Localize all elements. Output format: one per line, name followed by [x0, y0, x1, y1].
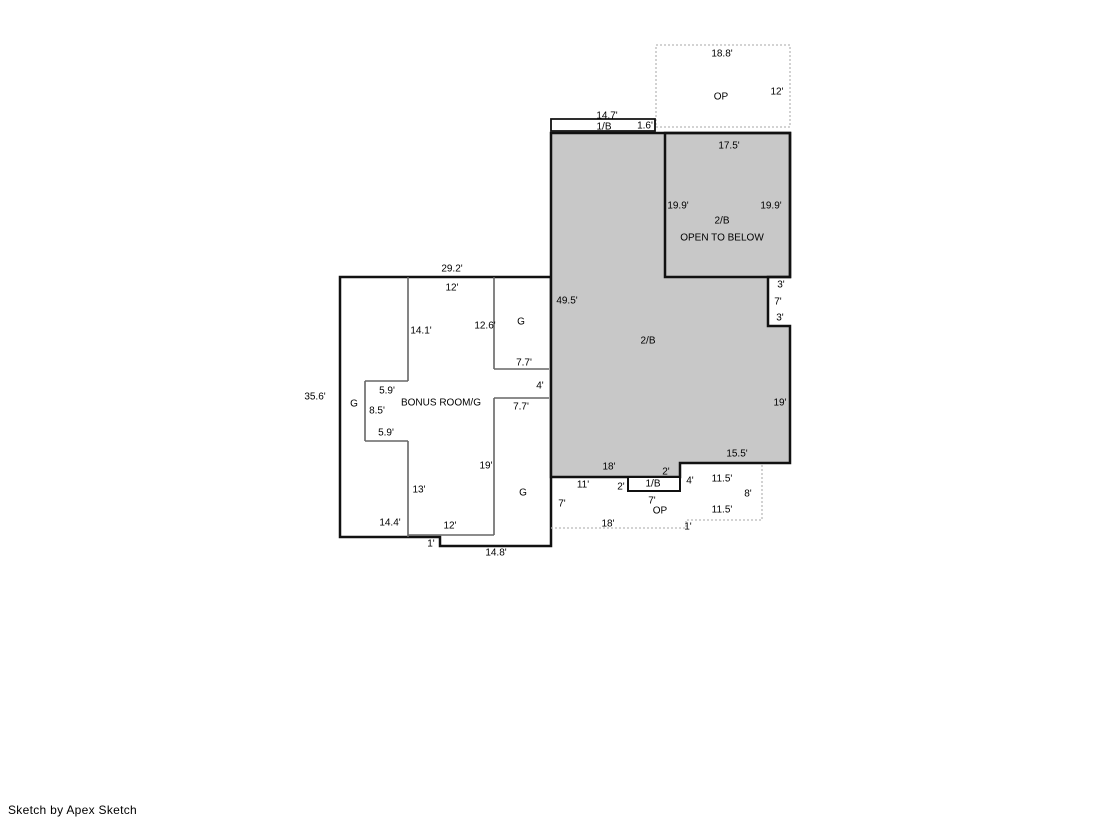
dim-label: 2' — [617, 482, 625, 493]
dim-label: 1' — [684, 522, 692, 533]
dim-label: 13' — [412, 485, 425, 496]
floorplan-canvas: 18.8'OP12'14.7'1/B1.6'17.5'19.9'19.9'2/B… — [0, 0, 1119, 821]
dim-label: 11' — [577, 480, 589, 491]
dim-label: 19' — [479, 461, 492, 472]
dim-label: 1' — [427, 539, 435, 550]
area-2b-main — [551, 133, 790, 477]
room-label-op-lower: OP — [653, 506, 668, 517]
room-label-1b-bottom: 1/B — [645, 479, 660, 490]
dim-label: 1.6' — [637, 121, 653, 132]
dim-label: 8.5' — [369, 406, 385, 417]
dim-label: 5.9' — [378, 428, 394, 439]
dim-label: 12' — [770, 87, 783, 98]
dim-label: 7.7' — [516, 358, 532, 369]
dim-label: 29.2' — [441, 264, 462, 275]
dim-label: 19' — [773, 398, 786, 409]
dim-label: 11.5' — [712, 505, 733, 516]
dim-label: 8' — [744, 489, 752, 500]
dim-label: 4' — [686, 476, 694, 487]
dim-label: 12' — [445, 283, 458, 294]
room-label-op-upper: OP — [714, 92, 729, 103]
dim-label: 49.5' — [556, 296, 577, 307]
dim-label: 18' — [601, 519, 614, 530]
dim-label: 12' — [443, 521, 456, 532]
dim-label: 14.7' — [596, 111, 617, 122]
dim-label: 14.4' — [379, 518, 400, 529]
dim-label: 3' — [777, 280, 785, 291]
dim-label: 12.6' — [474, 321, 495, 332]
dim-label: 15.5' — [726, 449, 747, 460]
room-label-1b-top: 1/B — [596, 122, 611, 133]
dim-label: 19.9' — [760, 201, 781, 212]
room-label-2b-main: 2/B — [640, 336, 655, 347]
dim-label: 19.9' — [667, 201, 688, 212]
room-label-g-lower: G — [519, 488, 527, 499]
dim-label: 4' — [536, 381, 544, 392]
dim-label: 5.9' — [379, 386, 395, 397]
dim-label: 18' — [602, 462, 615, 473]
dim-label: 7' — [774, 297, 782, 308]
footer-credit: Sketch by Apex Sketch — [8, 803, 137, 817]
dim-label: 7.7' — [513, 402, 529, 413]
room-label-g-corridor: G — [350, 399, 358, 410]
dim-label: 14.1' — [410, 326, 431, 337]
dim-label: 35.6' — [304, 392, 325, 403]
dim-label: 3' — [776, 313, 784, 324]
room-label-bonus-room: BONUS ROOM/G — [401, 398, 481, 409]
dim-label: 18.8' — [711, 49, 732, 60]
dim-label: 14.8' — [485, 548, 506, 559]
dim-label: 7' — [558, 499, 566, 510]
room-label-open-to-below: OPEN TO BELOW — [680, 233, 764, 244]
room-label-g-upper: G — [517, 317, 525, 328]
room-label-2b-open-below: 2/B — [714, 216, 729, 227]
dim-label: 2' — [662, 467, 670, 478]
sketch-page: 18.8'OP12'14.7'1/B1.6'17.5'19.9'19.9'2/B… — [0, 0, 1119, 821]
dim-label: 11.5' — [712, 474, 733, 485]
dim-label: 17.5' — [718, 141, 739, 152]
